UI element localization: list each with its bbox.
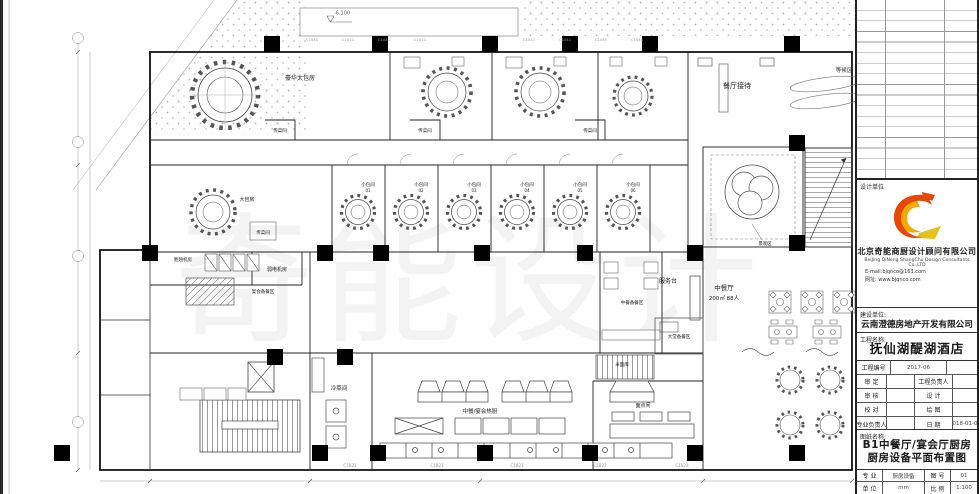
- unit-value: mm: [883, 482, 925, 494]
- label-cold-dish: 冷菜间: [331, 384, 348, 392]
- label-restaurant-cap: 200㎡ 88人: [709, 294, 740, 302]
- sheet-no-label: 图 号: [925, 470, 951, 482]
- svg-text:小包间: 小包间: [520, 181, 534, 188]
- design-unit-label: 设计单位: [860, 182, 884, 191]
- sign-label: 专业负责人: [857, 417, 887, 430]
- escalator: [789, 73, 855, 112]
- banquet-table-3: [516, 68, 564, 116]
- stair-east: [805, 148, 852, 247]
- svg-text:C1B23: C1B23: [343, 463, 357, 468]
- client-section: 建设单位: 云南澄德房地产开发有限公司: [857, 308, 977, 333]
- label-hot-kitchen: 中餐/宴会热厨: [463, 407, 498, 415]
- label-rice-flour: 米面库: [615, 361, 629, 368]
- svg-text:C1041: C1041: [631, 37, 644, 42]
- label-luxury-private: 豪华大包房: [285, 74, 315, 82]
- specialty-value: 厨房设备: [883, 470, 925, 482]
- client-name: 云南澄德房地产开发有限公司: [857, 318, 977, 330]
- svg-text:C1B23: C1B23: [430, 463, 444, 468]
- label-chinese-prep: 中餐备餐区: [621, 299, 644, 306]
- design-unit-section: 设计单位 北京奇能商厨设计顾问有限公司 BeiJing QiNeng Shang…: [857, 180, 977, 308]
- company-name-cn: 北京奇能商厨设计顾问有限公司: [857, 246, 977, 257]
- svg-text:05: 05: [577, 188, 583, 193]
- sign-label: 日 期: [915, 417, 953, 430]
- sign-label: 绘 图: [915, 403, 953, 417]
- label-serving-3: 传菜间: [583, 127, 597, 134]
- label-service-desk: 服务台: [659, 277, 677, 285]
- svg-text:C1041: C1041: [378, 37, 391, 42]
- svg-text:小包间: 小包间: [467, 181, 481, 188]
- project-number-label: 工程编号: [857, 361, 891, 374]
- cold-dish-equipment: [312, 358, 346, 448]
- project-section: 工程名称: 抚仙湖醍湖酒店: [857, 333, 977, 361]
- floor-plan-svg: 奇能设计 -6.100: [0, 0, 855, 494]
- scale-label: 比 例: [925, 482, 951, 494]
- top-room-furniture: [404, 57, 667, 68]
- project-name: 抚仙湖醍湖酒店: [857, 338, 977, 357]
- svg-text:03: 03: [471, 188, 477, 193]
- label-serving-1: 传菜间: [273, 127, 287, 134]
- vent-slab: -6.100: [300, 8, 518, 36]
- label-pastry: 面点间: [635, 402, 650, 409]
- project-number-row: 工程编号 2017-06: [857, 361, 977, 374]
- banquet-table-2: [423, 68, 471, 116]
- west-service-rooms: [100, 250, 150, 470]
- sheet-info-table: 专 业 厨房设备 图 号 01 单 位 mm 比 例 1:100: [857, 470, 977, 494]
- svg-text:小包间: 小包间: [573, 181, 587, 188]
- unit-label: 单 位: [857, 482, 883, 494]
- sheet-frame: [0, 0, 9, 494]
- svg-text:02: 02: [418, 188, 424, 193]
- sign-label: 设 计: [915, 389, 953, 403]
- company-logo: [857, 191, 977, 245]
- specialty-label: 专 业: [857, 470, 883, 482]
- company-email: E-mail:bjqnco@163.com: [857, 269, 977, 275]
- label-reception: 餐厅接待: [723, 81, 751, 90]
- svg-text:04: 04: [524, 188, 530, 193]
- drawing-name-section: 图纸名称: B1中餐厅/宴会厅厨房 厨房设备平面布置图: [857, 430, 977, 470]
- label-serving-4: 传菜间: [256, 229, 270, 236]
- svg-text:C1041: C1041: [306, 37, 319, 42]
- drawing-name-line2: 厨房设备平面布置图: [857, 452, 977, 465]
- drawing-sheet: 奇能设计 -6.100: [0, 0, 979, 494]
- label-baochi: 鲍翅机房: [174, 256, 192, 263]
- banquet-table-4: [614, 77, 652, 115]
- svg-text:C1B23: C1B23: [510, 463, 524, 468]
- svg-text:小包间: 小包间: [361, 181, 375, 188]
- signature-table: 审 定 工程负责人 审 核 设 计 校 对 绘 图 专业负责人 日 期 2018…: [857, 374, 977, 430]
- date-value: 2018-01-06: [953, 417, 977, 430]
- label-waiting: 等候区: [836, 66, 853, 74]
- company-name-en: BeiJing QiNeng ShangChu Design Consultan…: [857, 258, 977, 268]
- revision-table: [857, 0, 977, 180]
- label-lobby-prep: 大堂备餐区: [668, 333, 691, 340]
- project-number-value: 2017-06: [891, 361, 947, 374]
- company-website: 网址: www.bjqnco.com: [857, 276, 977, 283]
- title-block: 设计单位 北京奇能商厨设计顾问有限公司 BeiJing QiNeng Shang…: [855, 0, 979, 494]
- svg-text:01: 01: [365, 188, 371, 193]
- sign-label: 校 对: [857, 403, 887, 417]
- sign-label: 工程负责人: [915, 375, 953, 389]
- sheet-no-value: 01: [951, 470, 977, 482]
- svg-text:小包间: 小包间: [626, 181, 640, 188]
- label-weak-current: 弱电机房: [267, 266, 287, 273]
- elevation-label: -6.100: [334, 11, 350, 17]
- banquet-prep-platform: [186, 278, 234, 305]
- scale-value: 1:100: [951, 482, 977, 494]
- svg-text:C1041: C1041: [342, 37, 355, 42]
- label-landscape: 景观区: [758, 241, 772, 247]
- svg-text:C1B23: C1B23: [593, 463, 607, 468]
- label-banquet-prep: 宴会备餐区: [252, 288, 275, 295]
- dragon-logo-icon: [889, 191, 945, 241]
- svg-text:C1041: C1041: [559, 37, 572, 42]
- floor-plan-area: 奇能设计 -6.100: [0, 0, 855, 494]
- svg-text:C1041: C1041: [523, 37, 536, 42]
- sign-label: 审 定: [857, 375, 887, 389]
- service-desk-counter: [690, 276, 700, 320]
- sign-label: 审 核: [857, 389, 887, 403]
- svg-text:06: 06: [630, 188, 636, 193]
- label-big-private: 大包房: [239, 196, 254, 203]
- label-restaurant: 中餐厅: [714, 283, 734, 292]
- stair-west: [180, 362, 300, 452]
- svg-text:C1B23: C1B23: [675, 463, 689, 468]
- svg-text:小包间: 小包间: [414, 181, 428, 188]
- svg-text:C1041: C1041: [414, 37, 427, 42]
- svg-text:C1041: C1041: [595, 37, 608, 42]
- label-serving-2: 传菜间: [418, 127, 432, 134]
- pastry-equipment: [596, 355, 694, 438]
- drawing-name-label: 图纸名称:: [860, 432, 886, 441]
